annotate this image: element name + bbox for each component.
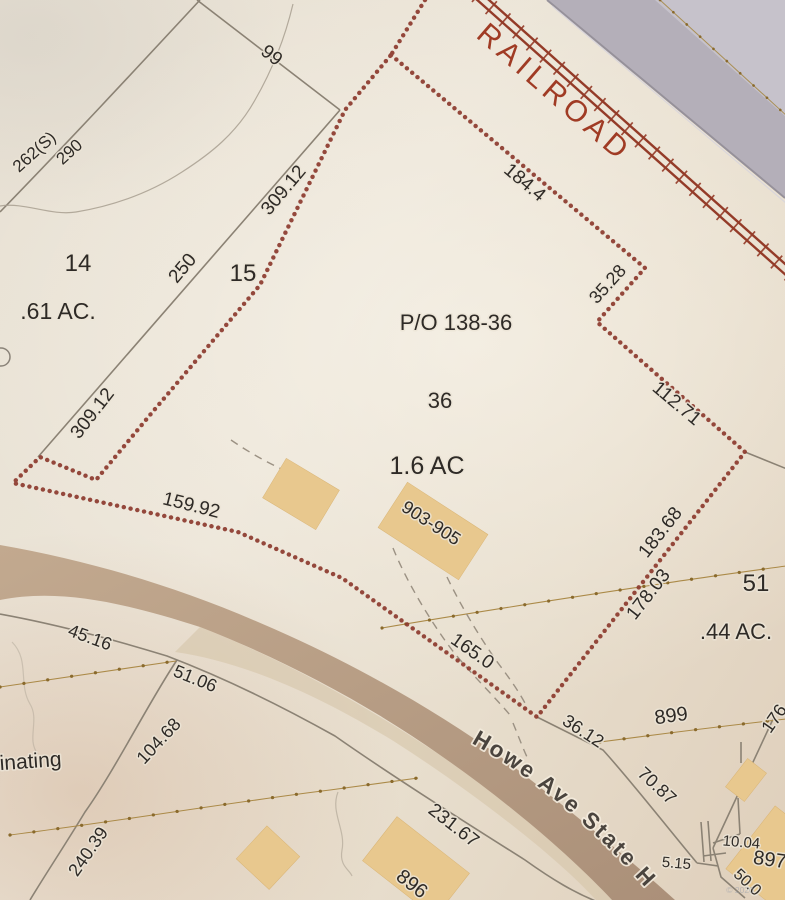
building-southwest [236, 826, 300, 890]
dim-10-04: 10.04 [722, 832, 761, 852]
dim-183-68: 183.68 [634, 503, 686, 562]
lot-line-104 [30, 660, 177, 900]
watermark: © 2020 [726, 885, 754, 895]
squiggle-2 [12, 642, 38, 754]
tan-line-4 [600, 719, 785, 742]
building-small-east [725, 758, 766, 801]
lot-15: 15 [230, 260, 257, 287]
stream [0, 4, 293, 213]
survey-lines [0, 0, 785, 900]
tan-line-2 [0, 661, 176, 687]
dim-176: 176 [757, 701, 785, 737]
dim-51-06: 51.06 [171, 661, 220, 696]
well-symbol [0, 348, 10, 366]
dim-165-0: 165.0 [447, 629, 498, 673]
dim-240-39: 240.39 [64, 823, 112, 880]
dim-45-16: 45.16 [65, 620, 114, 654]
dim-5-15: 5.15 [661, 854, 692, 873]
label-899: 899 [653, 703, 689, 729]
dim-112-71: 112.71 [648, 378, 705, 431]
building-unlabeled [263, 458, 340, 529]
area-44: .44 AC. [700, 619, 772, 644]
lot-line-262 [0, 0, 200, 212]
dim-309-12-top: 309.12 [257, 161, 310, 219]
dim-231-67: 231.67 [424, 799, 483, 851]
dim-36-12: 36.12 [559, 710, 608, 751]
area-61: .61 AC. [20, 298, 95, 324]
dim-70-87: 70.87 [634, 763, 681, 808]
squiggle-1 [336, 792, 352, 876]
parcel-boundary-spur [391, 0, 425, 55]
map-canvas: RAILROAD 184.4 35.28 112.71 183.68 178.0… [0, 0, 785, 900]
dim-35-28: 35.28 [585, 261, 630, 308]
dim-178-03: 178.03 [622, 565, 674, 624]
tan-line-3 [10, 778, 418, 835]
parcel-id: P/O 138-36 [400, 310, 513, 335]
driveway-3 [231, 440, 288, 472]
lot-36: 36 [428, 388, 452, 413]
area-1-6: 1.6 AC [389, 452, 464, 480]
dim-250: 250 [165, 250, 201, 288]
lot-14: 14 [65, 250, 92, 277]
parcel-map: RAILROAD 184.4 35.28 112.71 183.68 178.0… [0, 0, 785, 900]
label-262s: 262(S) [9, 128, 60, 176]
word-inating: inating [0, 748, 62, 775]
lot-line-east-stub [745, 452, 785, 469]
lot-51: 51 [743, 570, 770, 597]
